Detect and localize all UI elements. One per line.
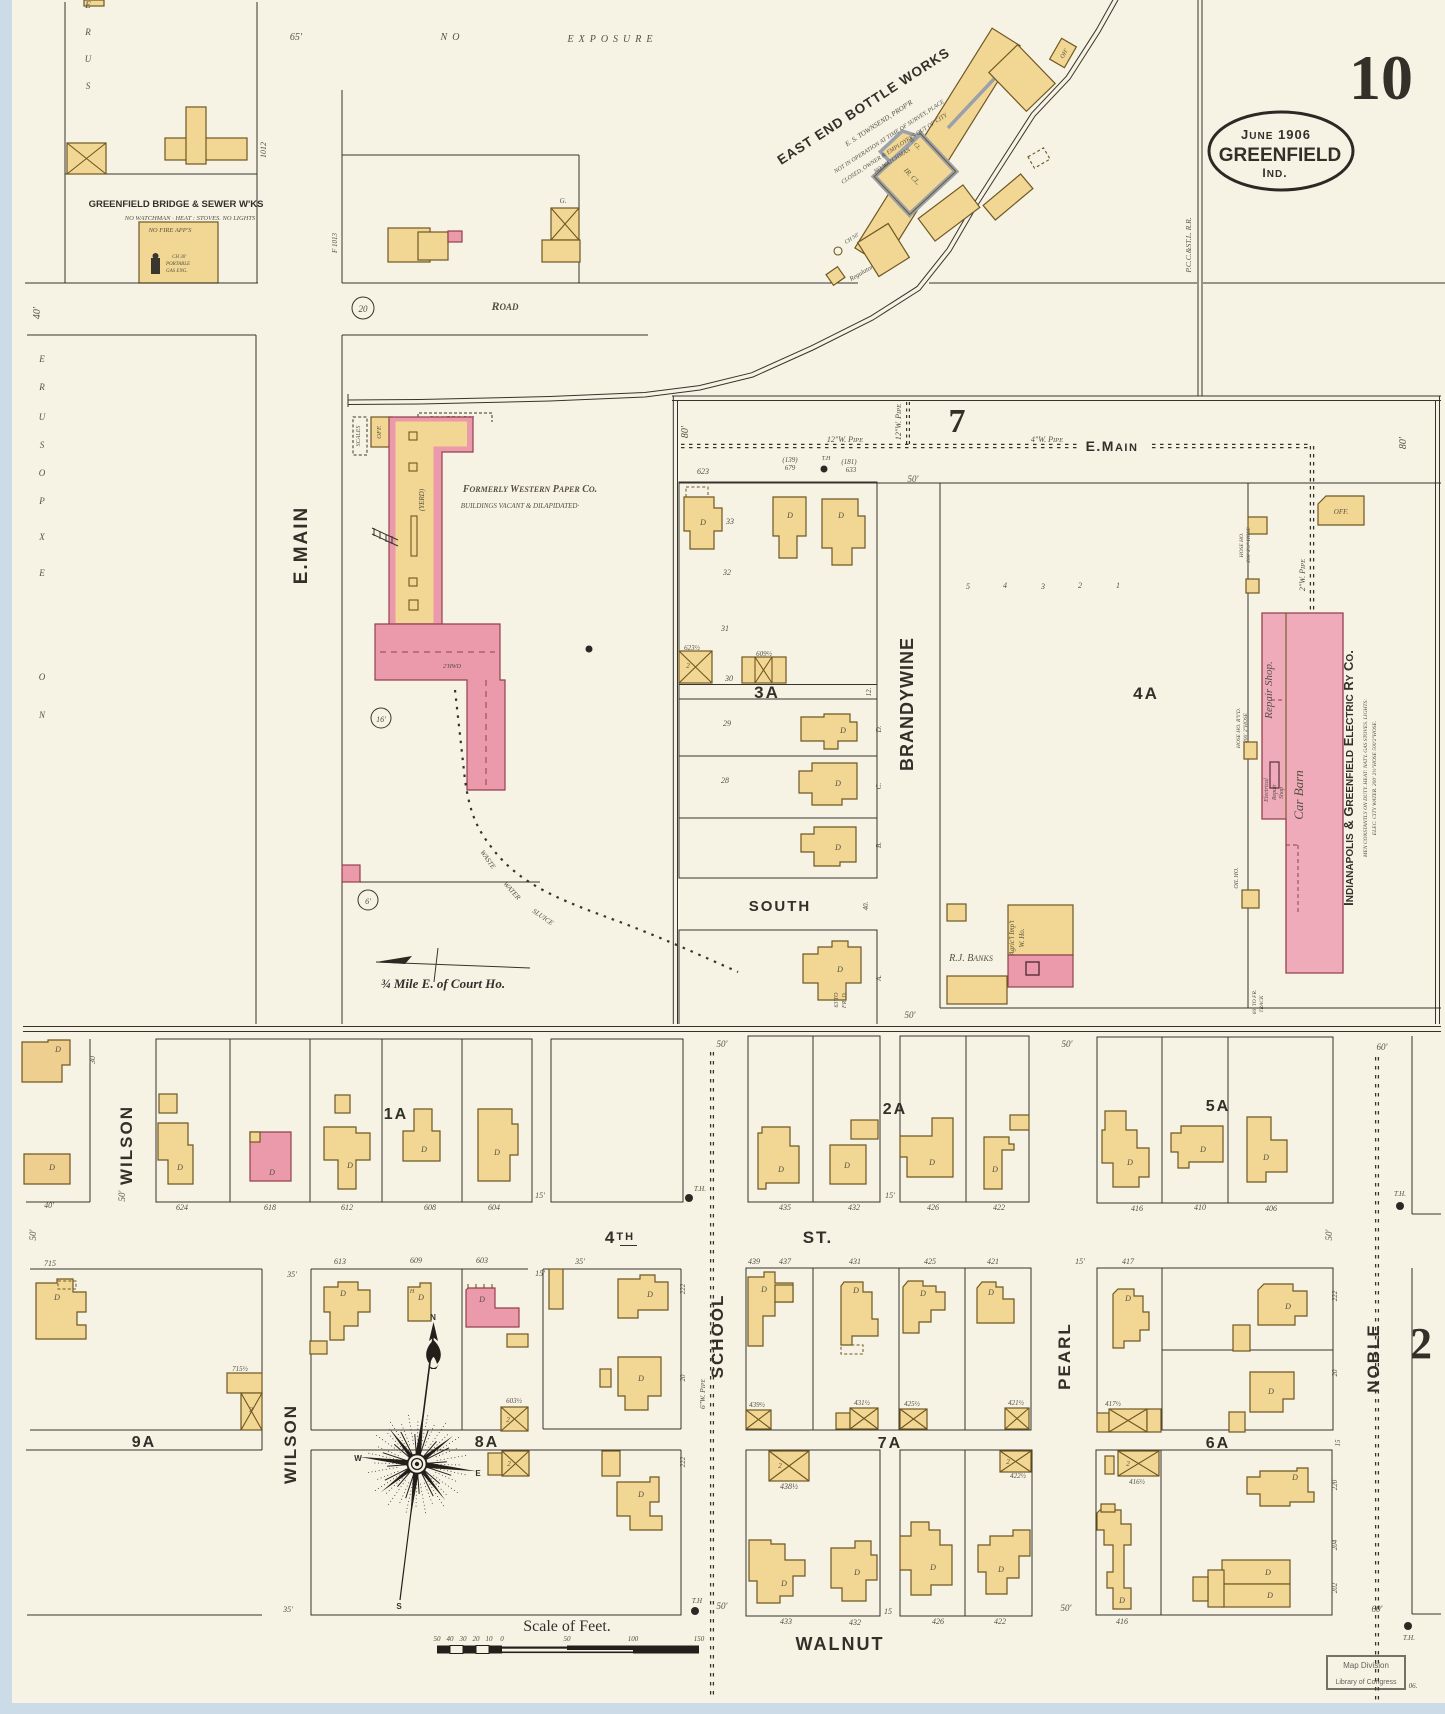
svg-text:406: 406 (1265, 1204, 1277, 1213)
svg-text:29: 29 (723, 719, 731, 728)
svg-text:D: D (852, 1286, 859, 1295)
svg-text:E: E (475, 1469, 481, 1478)
svg-text:426: 426 (932, 1617, 944, 1626)
svg-text:SCHOOL: SCHOOL (708, 1294, 727, 1379)
svg-text:D: D (786, 511, 793, 520)
svg-text:(139): (139) (782, 456, 798, 464)
svg-text:1012: 1012 (259, 142, 268, 158)
svg-text:603: 603 (476, 1256, 488, 1265)
svg-text:608: 608 (424, 1203, 436, 1212)
svg-text:NOBLE: NOBLE (1364, 1323, 1383, 1393)
svg-text:416: 416 (1131, 1204, 1143, 1213)
svg-text:D: D (853, 1568, 860, 1577)
svg-text:2′HWD: 2′HWD (443, 664, 462, 670)
svg-text:OFF.: OFF. (376, 425, 383, 439)
svg-text:4: 4 (1003, 581, 1007, 590)
svg-text:32: 32 (722, 568, 731, 577)
svg-text:T.H: T.H (692, 1597, 703, 1605)
svg-text:FORMERLY WESTERN PAPER CO.: FORMERLY WESTERN PAPER CO. (462, 484, 597, 495)
svg-text:80': 80' (680, 425, 691, 438)
svg-text:12.: 12. (865, 687, 873, 696)
svg-text:30: 30 (724, 674, 733, 683)
svg-text:416½: 416½ (1129, 1478, 1146, 1486)
svg-text:NO WATCHMAN · HEAT : STOVES. N: NO WATCHMAN · HEAT : STOVES. NO LIGHTS (124, 215, 256, 222)
svg-text:15': 15' (535, 1191, 545, 1200)
svg-text:80': 80' (1398, 436, 1409, 449)
svg-text:D: D (839, 726, 846, 735)
svg-text:Repair Shop.: Repair Shop. (1263, 661, 1275, 719)
svg-text:OFF.: OFF. (1334, 508, 1349, 516)
svg-text:422½: 422½ (1010, 1472, 1027, 1480)
svg-text:2: 2 (1126, 1460, 1130, 1468)
svg-text:WILSON: WILSON (117, 1105, 136, 1185)
svg-text:50': 50' (1061, 1603, 1073, 1613)
svg-text:8A: 8A (475, 1434, 499, 1451)
svg-text:D: D (991, 1165, 998, 1174)
svg-text:609½: 609½ (756, 650, 773, 658)
svg-text:2A: 2A (883, 1101, 907, 1118)
svg-text:D: D (760, 1285, 767, 1294)
svg-text:PORTABLE: PORTABLE (165, 262, 190, 267)
svg-text:5A: 5A (1206, 1098, 1230, 1115)
svg-text:(181): (181) (841, 458, 857, 466)
svg-text:16': 16' (376, 715, 386, 724)
svg-text:D: D (837, 511, 844, 520)
svg-text:Scale of Feet.: Scale of Feet. (523, 1618, 611, 1635)
svg-text:50': 50' (905, 1010, 917, 1020)
svg-text:D: D (780, 1579, 787, 1588)
svg-text:425½: 425½ (904, 1400, 921, 1408)
svg-text:2: 2 (778, 1462, 782, 1470)
svg-text:435: 435 (779, 1203, 791, 1212)
svg-text:439½: 439½ (749, 1401, 766, 1409)
svg-text:E X P O S U R E: E X P O S U R E (567, 34, 653, 45)
svg-text:604: 604 (488, 1203, 500, 1212)
svg-text:12″W. PIPE: 12″W. PIPE (827, 435, 863, 444)
svg-text:2: 2 (1078, 581, 1082, 590)
svg-text:D: D (1262, 1153, 1269, 1162)
svg-text:CH 30': CH 30' (172, 255, 187, 260)
svg-text:HOSE HO.: HOSE HO. (1239, 533, 1245, 559)
svg-text:679: 679 (785, 464, 796, 472)
svg-text:D: D (54, 1045, 61, 1054)
svg-text:432: 432 (848, 1203, 860, 1212)
svg-text:3A: 3A (754, 683, 780, 702)
svg-text:D: D (929, 1563, 936, 1572)
svg-text:6': 6' (365, 897, 371, 906)
svg-text:N O: N O (440, 32, 460, 43)
svg-text:40: 40 (447, 1635, 455, 1643)
svg-text:D: D (1284, 1302, 1291, 1311)
svg-text:S: S (86, 81, 91, 91)
svg-text:623: 623 (697, 467, 709, 476)
svg-text:40': 40' (44, 1201, 54, 1210)
svg-text:E: E (38, 354, 45, 364)
svg-text:PEARL: PEARL (1055, 1322, 1074, 1390)
svg-text:WILSON: WILSON (281, 1404, 300, 1484)
svg-text:2: 2 (1006, 1458, 1010, 1466)
svg-text:15': 15' (1075, 1257, 1085, 1266)
svg-text:63′TO: 63′TO (834, 992, 840, 1008)
svg-text:MEN CONSTANTLY ON DUTY. HEAT:: MEN CONSTANTLY ON DUTY. HEAT: NAT'L GAS … (1363, 699, 1369, 858)
svg-text:D: D (777, 1165, 784, 1174)
svg-text:IND.: IND. (1262, 166, 1287, 180)
svg-text:HOSE HO. R'Y'D.: HOSE HO. R'Y'D. (1236, 708, 1242, 749)
svg-text:4″W. PIPE: 4″W. PIPE (1031, 435, 1063, 444)
svg-text:3: 3 (1040, 582, 1045, 591)
svg-text:31: 31 (720, 624, 729, 633)
svg-text:N: N (38, 710, 46, 720)
svg-text:T.H.: T.H. (694, 1185, 706, 1193)
svg-text:222: 222 (679, 1456, 687, 1467)
svg-text:T.H: T.H (822, 456, 831, 462)
svg-text:50': 50' (717, 1039, 729, 1049)
svg-text:431½: 431½ (854, 1399, 871, 1407)
svg-text:D: D (646, 1290, 653, 1299)
svg-text:D: D (176, 1163, 183, 1172)
svg-text:Shop: Shop (1279, 787, 1285, 799)
svg-text:W: W (354, 1454, 362, 1463)
svg-text:O: O (39, 672, 46, 682)
svg-text:R: R (38, 382, 45, 392)
svg-text:D: D (1124, 1294, 1131, 1303)
svg-text:0: 0 (500, 1635, 504, 1643)
svg-text:609: 609 (410, 1256, 422, 1265)
svg-text:E.MAIN: E.MAIN (291, 506, 312, 585)
svg-text:623½: 623½ (684, 644, 701, 652)
svg-text:D: D (1267, 1387, 1274, 1396)
svg-text:603½: 603½ (506, 1397, 523, 1405)
svg-text:O: O (39, 468, 46, 478)
svg-text:2: 2 (507, 1460, 511, 1468)
svg-text:100: 100 (628, 1635, 639, 1643)
svg-text:ST.: ST. (803, 1228, 834, 1247)
svg-text:417½: 417½ (1105, 1400, 1122, 1408)
svg-text:439: 439 (748, 1257, 760, 1266)
svg-text:E: E (38, 568, 45, 578)
svg-text:A.: A. (875, 975, 883, 982)
svg-text:Map Division: Map Division (1343, 1661, 1389, 1670)
svg-text:50': 50' (117, 1189, 127, 1201)
svg-text:D: D (1118, 1596, 1125, 1605)
svg-text:D: D (637, 1374, 644, 1383)
svg-text:2: 2 (1410, 1319, 1432, 1368)
svg-text:D: D (53, 1293, 60, 1302)
svg-text:D: D (919, 1289, 926, 1298)
svg-text:422: 422 (994, 1617, 1006, 1626)
svg-text:ELEC. CITY WATER. 200' 2½″HO: ELEC. CITY WATER. 200' 2½″HOSE 500'2″HOS… (1371, 721, 1378, 836)
svg-text:30: 30 (459, 1635, 468, 1643)
svg-text:432: 432 (849, 1618, 861, 1627)
svg-text:B.: B. (875, 842, 883, 848)
svg-text:50: 50 (564, 1635, 572, 1643)
svg-text:431: 431 (849, 1257, 861, 1266)
svg-text:WALNUT: WALNUT (796, 1634, 885, 1654)
svg-text:P.C.C.&ST.L. R.R.: P.C.C.&ST.L. R.R. (1184, 217, 1193, 273)
svg-text:Agric'l Imp't: Agric'l Imp't (1008, 919, 1016, 956)
svg-text:40.: 40. (862, 901, 870, 910)
svg-text:GAS ENG.: GAS ENG. (166, 269, 188, 274)
svg-text:D: D (493, 1148, 500, 1157)
svg-text:60′ TO FR.: 60′ TO FR. (1252, 990, 1258, 1014)
svg-text:65': 65' (290, 32, 303, 43)
svg-text:426: 426 (927, 1203, 939, 1212)
svg-text:D: D (834, 779, 841, 788)
svg-text:35': 35' (286, 1270, 297, 1279)
svg-text:20: 20 (359, 304, 369, 314)
svg-text:D: D (637, 1490, 644, 1499)
svg-text:S: S (40, 440, 45, 450)
svg-text:15: 15 (1334, 1439, 1342, 1447)
svg-text:50': 50' (717, 1601, 729, 1611)
svg-text:10: 10 (1349, 42, 1413, 113)
svg-text:OIL HO.: OIL HO. (1234, 867, 1240, 888)
svg-text:5: 5 (966, 582, 970, 591)
svg-text:60': 60' (1372, 1604, 1384, 1614)
svg-text:D: D (1266, 1591, 1273, 1600)
svg-text:NO FIRE APP'S: NO FIRE APP'S (148, 227, 193, 234)
svg-text:15': 15' (535, 1269, 545, 1278)
svg-text:15': 15' (885, 1191, 895, 1200)
svg-text:X: X (38, 532, 45, 542)
svg-text:TRACK: TRACK (1259, 995, 1265, 1012)
svg-text:H: H (409, 1289, 415, 1295)
svg-text:Car Barn: Car Barn (1291, 770, 1306, 819)
svg-text:202: 202 (1331, 1582, 1339, 1593)
svg-text:416: 416 (1116, 1617, 1128, 1626)
svg-text:438½: 438½ (780, 1482, 798, 1491)
svg-text:222: 222 (679, 1283, 687, 1294)
svg-text:D: D (478, 1295, 485, 1304)
svg-text:W. Ho.: W. Ho. (1018, 928, 1026, 947)
svg-text:ROAD: ROAD (490, 299, 519, 313)
svg-text:421: 421 (987, 1257, 999, 1266)
svg-text:437: 437 (779, 1257, 792, 1266)
svg-text:220: 220 (1331, 1479, 1339, 1490)
svg-text:50': 50' (1062, 1039, 1074, 1049)
svg-text:D: D (420, 1145, 427, 1154)
svg-text:D: D (48, 1163, 55, 1172)
svg-text:222: 222 (1331, 1290, 1339, 1301)
svg-text:200′ 2″HOSE: 200′ 2″HOSE (1243, 712, 1249, 743)
svg-text:618: 618 (264, 1203, 276, 1212)
svg-text:9A: 9A (132, 1434, 156, 1451)
svg-text:20: 20 (473, 1635, 481, 1643)
svg-text:R.J. BANKS: R.J. BANKS (948, 953, 993, 964)
svg-text:D: D (1264, 1568, 1271, 1577)
svg-text:421½: 421½ (1008, 1399, 1025, 1407)
svg-text:1A: 1A (384, 1106, 408, 1123)
svg-text:BRANDYWINE: BRANDYWINE (897, 637, 917, 771)
svg-text:10: 10 (486, 1635, 494, 1643)
svg-text:U: U (85, 54, 92, 64)
svg-text:417: 417 (1122, 1257, 1135, 1266)
svg-text:D: D (346, 1161, 353, 1170)
svg-text:E: E (84, 0, 91, 10)
svg-text:30: 30 (88, 1056, 97, 1065)
svg-text:425: 425 (924, 1257, 936, 1266)
svg-text:Electrical: Electrical (1264, 778, 1270, 803)
svg-text:06.: 06. (1409, 1682, 1418, 1690)
svg-text:2″W. PIPE: 2″W. PIPE (1298, 559, 1307, 591)
svg-text:GREENFIELD BRIDGE & SEWER W'KS: GREENFIELD BRIDGE & SEWER W'KS (89, 199, 264, 210)
svg-text:2: 2 (686, 662, 690, 670)
svg-text:S: S (396, 1602, 402, 1611)
svg-text:50': 50' (1324, 1228, 1334, 1240)
svg-text:D: D (997, 1565, 1004, 1574)
svg-text:7: 7 (949, 403, 966, 440)
svg-text:15: 15 (884, 1607, 892, 1616)
svg-text:D: D (834, 843, 841, 852)
svg-text:200′ 2½″ HOSE: 200′ 2½″ HOSE (1245, 527, 1252, 563)
svg-text:(YERD): (YERD) (418, 488, 426, 511)
svg-text:D: D (417, 1293, 424, 1302)
svg-text:SOUTH: SOUTH (749, 898, 812, 915)
svg-text:¾ Mile E. of Court Ho.: ¾ Mile E. of Court Ho. (381, 976, 505, 991)
svg-text:T.H.: T.H. (1394, 1190, 1406, 1198)
svg-text:Repair: Repair (1272, 783, 1278, 801)
svg-text:D: D (268, 1168, 275, 1177)
svg-text:FR. D.: FR. D. (842, 992, 848, 1009)
svg-text:C.: C. (875, 783, 883, 790)
svg-text:G.: G. (560, 197, 567, 205)
svg-text:33: 33 (725, 517, 734, 526)
svg-text:20: 20 (679, 1374, 687, 1382)
svg-text:633: 633 (846, 466, 857, 474)
svg-text:433: 433 (780, 1617, 792, 1626)
svg-text:Library of Congress: Library of Congress (1335, 1679, 1397, 1686)
svg-text:2: 2 (249, 1406, 253, 1414)
svg-text:D: D (699, 518, 706, 527)
svg-text:P: P (38, 496, 45, 506)
svg-text:6A: 6A (1206, 1435, 1230, 1452)
svg-text:50: 50 (434, 1635, 442, 1643)
svg-text:D.: D. (875, 725, 883, 733)
svg-text:204: 204 (1331, 1539, 1339, 1550)
svg-text:F 1013: F 1013 (331, 232, 339, 254)
svg-text:20: 20 (1331, 1369, 1339, 1377)
svg-text:D: D (836, 965, 843, 974)
svg-text:7A: 7A (878, 1435, 902, 1452)
svg-text:1: 1 (1116, 581, 1120, 590)
svg-text:40': 40' (32, 306, 43, 319)
svg-text:28: 28 (721, 776, 729, 785)
svg-text:4A: 4A (1133, 684, 1159, 703)
svg-text:R: R (84, 27, 91, 37)
svg-text:410: 410 (1194, 1203, 1206, 1212)
svg-text:715½: 715½ (232, 1365, 249, 1373)
svg-text:U: U (39, 412, 46, 422)
svg-text:BUILDINGS VACANT & DILAPIDATE: BUILDINGS VACANT & DILAPIDATED· (461, 502, 580, 510)
svg-text:SCALES: SCALES (356, 426, 362, 447)
svg-text:D: D (928, 1158, 935, 1167)
svg-text:35': 35' (282, 1605, 293, 1614)
svg-text:T.H.: T.H. (1403, 1634, 1415, 1642)
svg-text:D: D (987, 1288, 994, 1297)
svg-text:D: D (1291, 1473, 1298, 1482)
svg-text:12″W. PIPE: 12″W. PIPE (894, 404, 903, 440)
svg-text:35': 35' (574, 1257, 585, 1266)
svg-text:N: N (430, 1313, 436, 1322)
svg-text:2: 2 (506, 1416, 510, 1424)
svg-text:D: D (843, 1161, 850, 1170)
svg-text:D: D (1126, 1158, 1133, 1167)
svg-text:D: D (339, 1289, 346, 1298)
svg-text:422: 422 (993, 1203, 1005, 1212)
svg-text:GREENFIELD: GREENFIELD (1219, 145, 1341, 166)
svg-text:50': 50' (28, 1228, 38, 1240)
svg-text:624: 624 (176, 1203, 188, 1212)
svg-text:150: 150 (694, 1635, 705, 1643)
svg-text:715: 715 (44, 1259, 56, 1268)
svg-text:612: 612 (341, 1203, 353, 1212)
svg-text:613: 613 (334, 1257, 346, 1266)
svg-text:60': 60' (1377, 1042, 1389, 1052)
svg-text:D: D (1199, 1145, 1206, 1154)
